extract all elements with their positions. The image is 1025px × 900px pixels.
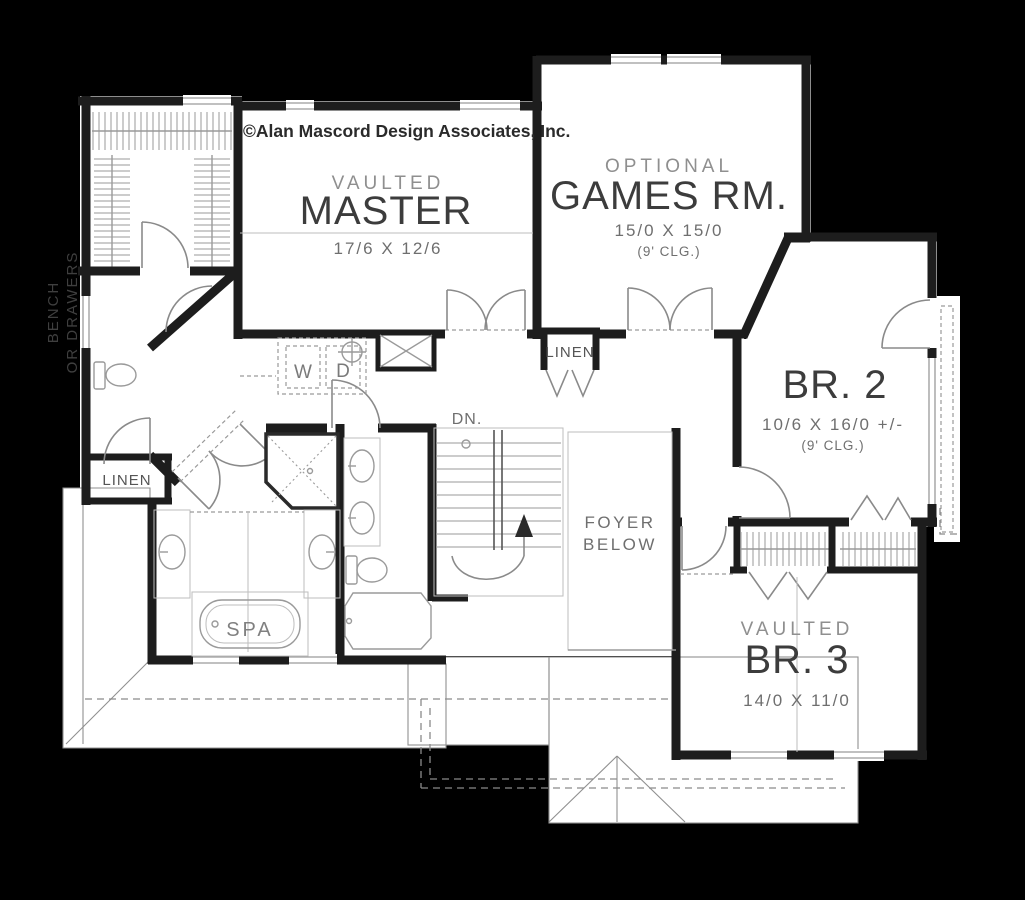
games-window-2	[667, 54, 721, 66]
br3-dims-label: 14/0 X 11/0	[743, 691, 851, 710]
games-room-label: GAMES RM.	[550, 174, 788, 218]
dryer-label: D	[336, 361, 350, 382]
games-ceiling-label: (9' CLG.)	[637, 244, 700, 259]
master-window-2	[460, 100, 520, 112]
shower-chase-box	[378, 333, 434, 369]
br2-deck-window	[926, 358, 938, 504]
washer-label: W	[294, 362, 312, 383]
linen-bath-label: LINEN	[102, 472, 151, 489]
br2-room-label: BR. 2	[782, 363, 887, 407]
games-window-1	[611, 54, 661, 66]
master-window-1	[286, 100, 314, 112]
foyer-label-line2: BELOW	[583, 535, 657, 554]
br3-room-label: BR. 3	[744, 638, 849, 682]
closet-note-line1: BENCH	[45, 281, 62, 344]
stairs-down-label: DN.	[452, 411, 483, 428]
floor-plan-page: ©Alan Mascord Design Associates, Inc. VA…	[0, 0, 1025, 900]
wc-window	[80, 296, 92, 348]
br2-deck-door-gap	[926, 298, 938, 348]
linen-hall-label: LINEN	[545, 344, 594, 361]
br2-ceiling-label: (9' CLG.)	[801, 438, 864, 453]
br3-corridor-floor	[676, 424, 742, 528]
master-dims-label: 17/6 X 12/6	[334, 239, 443, 258]
closet-note-line2: OR DRAWERS	[64, 251, 81, 374]
roof-center-left-area	[408, 657, 549, 745]
master-room-label: MASTER	[300, 189, 473, 233]
br3-window-1	[731, 749, 787, 761]
games-dims-label: 15/0 X 15/0	[615, 221, 724, 240]
spa-label: SPA	[226, 619, 274, 641]
closet-window	[183, 95, 231, 107]
foyer-label-line1: FOYER	[584, 513, 655, 532]
br2-dims-label: 10/6 X 16/0 +/-	[762, 415, 904, 434]
copyright-text: ©Alan Mascord Design Associates, Inc.	[243, 121, 570, 141]
br3-window-2	[834, 749, 884, 761]
floor-plan-drawing: ©Alan Mascord Design Associates, Inc. VA…	[0, 0, 1025, 900]
br3-prefix-label: VAULTED	[741, 619, 854, 640]
